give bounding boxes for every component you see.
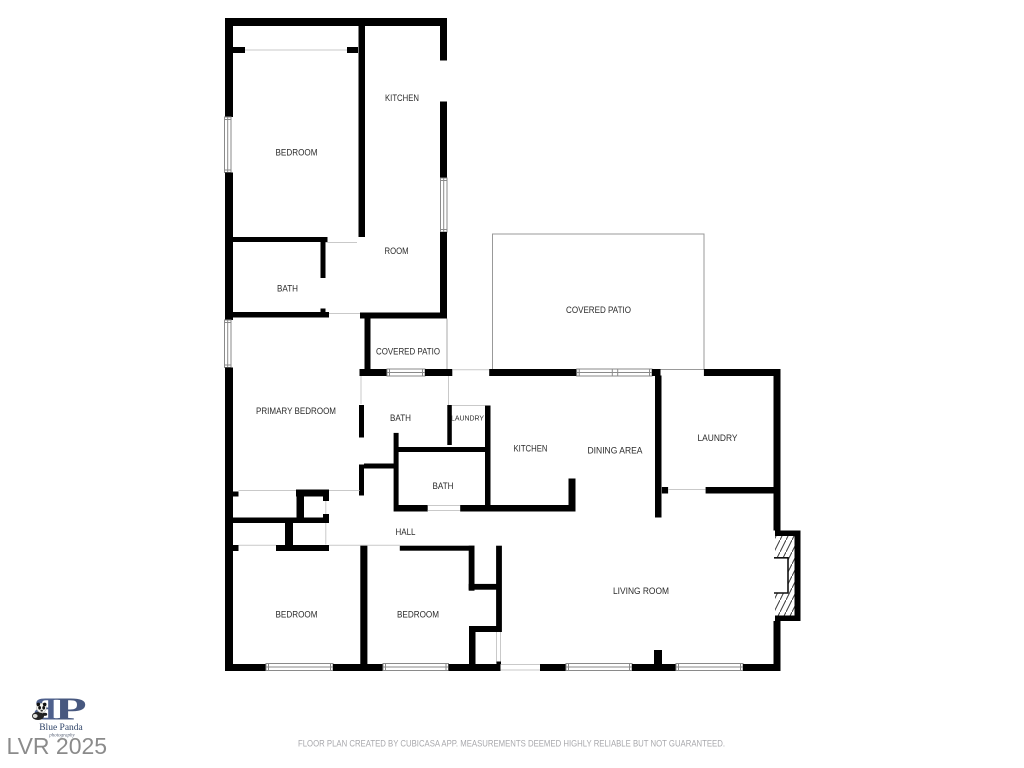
svg-text:BATH: BATH <box>390 413 411 424</box>
svg-text:BEDROOM: BEDROOM <box>276 610 318 621</box>
svg-text:BEDROOM: BEDROOM <box>276 148 318 159</box>
svg-text:HALL: HALL <box>396 527 416 538</box>
svg-text:BATH: BATH <box>433 481 454 492</box>
svg-text:LAUNDRY: LAUNDRY <box>698 433 739 444</box>
svg-text:BEDROOM: BEDROOM <box>397 610 439 621</box>
svg-text:COVERED PATIO: COVERED PATIO <box>566 305 631 316</box>
svg-text:ROOM: ROOM <box>385 246 409 257</box>
svg-text:BATH: BATH <box>277 284 298 295</box>
svg-text:KITCHEN: KITCHEN <box>385 93 419 104</box>
svg-text:PRIMARY BEDROOM: PRIMARY BEDROOM <box>256 406 336 417</box>
svg-text:P: P <box>55 693 87 727</box>
svg-text:KITCHEN: KITCHEN <box>514 444 548 455</box>
svg-text:Blue Panda: Blue Panda <box>39 723 83 733</box>
svg-text:DINING AREA: DINING AREA <box>588 446 644 457</box>
svg-text:COVERED PATIO: COVERED PATIO <box>376 347 440 358</box>
svg-text:LAUNDRY: LAUNDRY <box>451 414 484 423</box>
svg-text:LVR 2025: LVR 2025 <box>7 733 108 759</box>
svg-text:FLOOR PLAN CREATED BY CUBICASA: FLOOR PLAN CREATED BY CUBICASA APP. MEAS… <box>298 739 725 749</box>
svg-text:LIVING ROOM: LIVING ROOM <box>613 586 669 597</box>
